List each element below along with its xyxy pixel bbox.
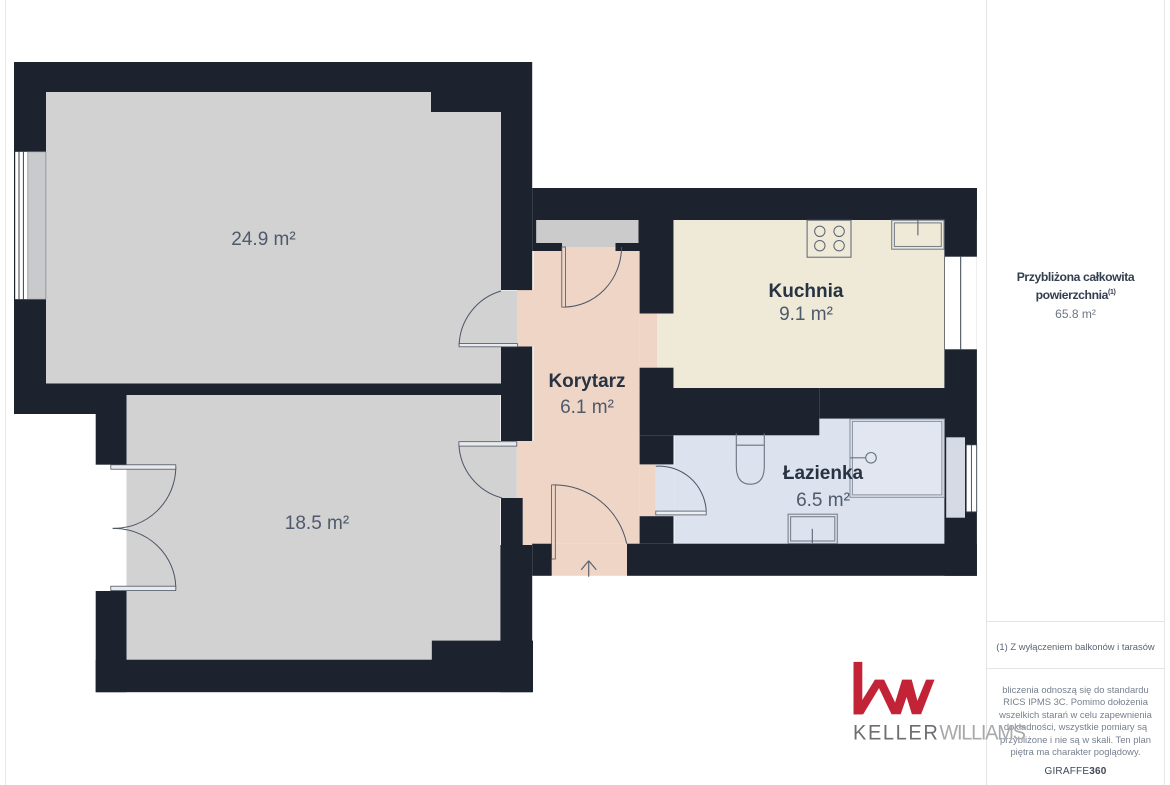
svg-text:KELLERWILLIAMS: KELLERWILLIAMS [853, 721, 1025, 745]
